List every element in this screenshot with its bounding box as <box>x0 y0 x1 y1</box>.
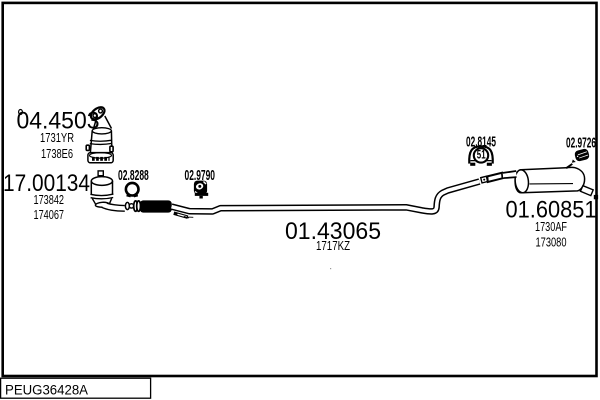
svg-text:02.8145: 02.8145 <box>466 133 496 150</box>
svg-text:1731YR: 1731YR <box>40 131 74 145</box>
svg-text:173080: 173080 <box>536 236 567 250</box>
svg-text:02.9726: 02.9726 <box>566 134 596 151</box>
svg-text:1717KZ: 1717KZ <box>316 239 350 253</box>
svg-text:173842: 173842 <box>34 193 65 207</box>
svg-text:1738E6: 1738E6 <box>41 147 73 161</box>
svg-text:02.9790: 02.9790 <box>185 167 216 184</box>
svg-text:174067: 174067 <box>34 208 65 222</box>
svg-text:02.8288: 02.8288 <box>118 167 149 184</box>
svg-text:PEUG36428A: PEUG36428A <box>5 383 88 399</box>
svg-text:1730AF: 1730AF <box>535 220 567 234</box>
